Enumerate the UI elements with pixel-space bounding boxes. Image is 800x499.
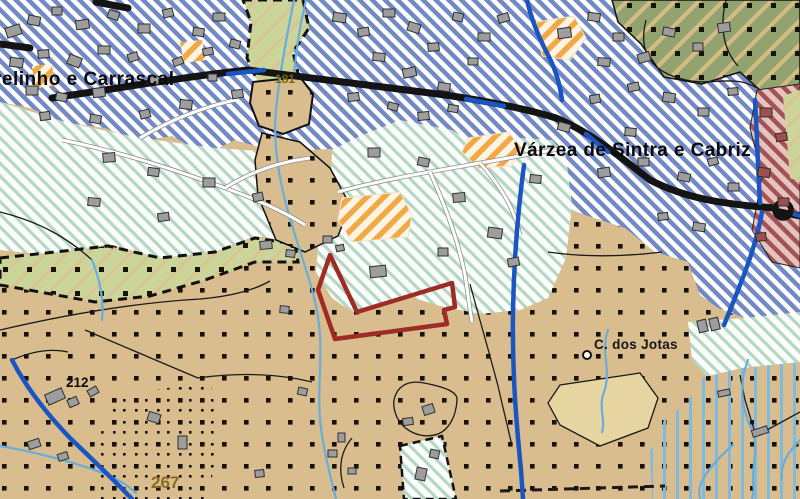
building: [588, 12, 601, 22]
label-place-jotas: C. dos Jotas: [594, 337, 678, 352]
building: [103, 152, 116, 162]
building: [453, 192, 466, 202]
building: [39, 111, 50, 120]
zone-orange-equip-1: [338, 192, 412, 242]
building: [447, 104, 458, 113]
building: [229, 39, 241, 49]
building: [202, 47, 213, 56]
building: [208, 74, 217, 81]
label-parish-left: relinho e Carrascal: [0, 69, 175, 90]
building: [180, 99, 193, 109]
building: [213, 13, 225, 21]
building: [658, 212, 669, 220]
building: [613, 33, 624, 41]
map-canvas[interactable]: relinho e CarrascalVárzea de Sintra e Ca…: [0, 0, 800, 499]
building: [55, 92, 67, 102]
building: [778, 198, 789, 206]
building: [286, 249, 296, 257]
building: [452, 12, 463, 22]
building: [487, 227, 502, 239]
building: [27, 15, 41, 26]
building: [438, 82, 451, 92]
building: [760, 108, 772, 117]
building: [368, 148, 380, 157]
building: [297, 387, 307, 396]
building: [598, 57, 611, 66]
building: [557, 27, 571, 39]
building: [75, 19, 89, 30]
building: [530, 174, 542, 183]
building: [438, 248, 448, 256]
building: [627, 82, 639, 92]
building: [507, 257, 519, 267]
main-road: [0, 44, 30, 48]
building: [597, 167, 610, 178]
building: [693, 43, 703, 51]
building: [348, 468, 356, 474]
building: [478, 33, 490, 41]
building: [418, 111, 430, 120]
building: [357, 27, 369, 37]
building: [728, 183, 739, 191]
building: [88, 197, 101, 206]
building: [280, 306, 290, 314]
building: [468, 58, 478, 65]
building: [157, 212, 169, 221]
building: [252, 192, 263, 202]
building: [756, 233, 767, 242]
building: [138, 24, 150, 33]
building: [203, 178, 215, 187]
building: [717, 22, 730, 33]
building: [775, 132, 787, 141]
building: [698, 108, 709, 116]
building: [662, 92, 675, 103]
label-elev-267: 267: [151, 473, 179, 492]
map-viewport[interactable]: relinho e CarrascalVárzea de Sintra e Ca…: [0, 0, 800, 499]
building: [328, 450, 337, 457]
building: [260, 240, 273, 249]
building: [757, 167, 770, 178]
zone-orange-equip-4: [180, 40, 206, 63]
building: [728, 88, 739, 96]
label-elev-212: 212: [66, 375, 89, 390]
building: [373, 52, 386, 61]
building: [589, 94, 600, 104]
label-road-181: 181: [275, 72, 295, 86]
building: [417, 157, 429, 167]
building: [625, 128, 637, 137]
building: [335, 244, 344, 252]
label-parish-right: Várzea de Sintra e Cabriz: [514, 140, 751, 161]
building: [178, 436, 187, 449]
building: [89, 114, 101, 124]
building: [403, 417, 414, 425]
building: [383, 9, 395, 17]
building: [347, 92, 359, 101]
building: [192, 27, 204, 36]
building: [338, 433, 345, 442]
building: [369, 265, 386, 278]
well-marker-icon: [583, 351, 591, 359]
building: [38, 50, 50, 59]
building: [147, 167, 159, 176]
building: [255, 470, 265, 478]
building: [323, 236, 332, 243]
building: [429, 449, 439, 459]
building: [9, 57, 23, 68]
building: [231, 89, 243, 99]
building: [332, 12, 346, 23]
building: [52, 7, 62, 15]
building: [98, 46, 110, 54]
building: [162, 8, 174, 18]
building: [693, 222, 706, 232]
building: [415, 467, 427, 481]
building: [428, 43, 440, 52]
